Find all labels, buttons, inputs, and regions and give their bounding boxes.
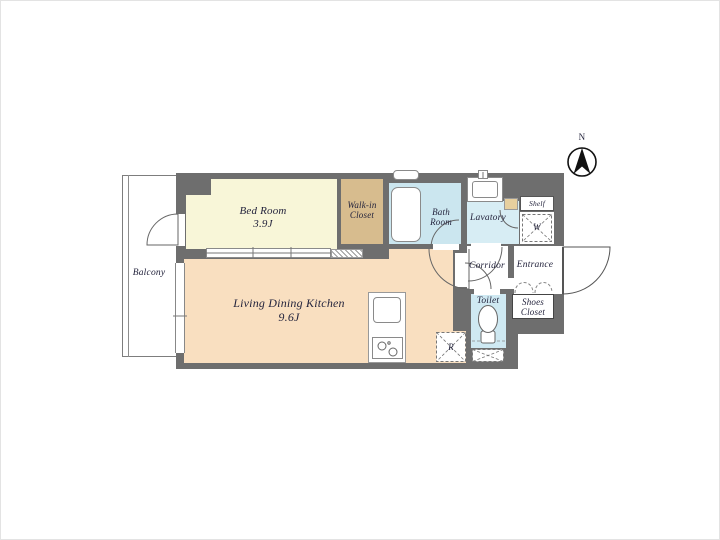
bedroom-ldk-sliding-door xyxy=(206,248,331,258)
ldk-label: Living Dining Kitchen 9.6J xyxy=(209,296,369,324)
bedroom-name: Bed Room xyxy=(239,205,286,217)
washer-label: W xyxy=(522,222,552,233)
entrance-door-swing xyxy=(563,247,610,294)
ldk-area: 9.6J xyxy=(209,310,369,324)
shoes-closet-label: Shoes Closet xyxy=(512,297,554,317)
bath-window xyxy=(393,170,419,180)
north-label: N xyxy=(572,132,592,143)
wic-entry-hatch xyxy=(331,249,363,258)
entrance-label: Entrance xyxy=(505,260,565,271)
lavatory-label: Lavatory xyxy=(458,213,518,224)
lavatory-faucet xyxy=(478,170,488,179)
refrigerator-label: R xyxy=(436,342,466,353)
compass-icon xyxy=(568,148,596,176)
bath-doorway xyxy=(433,244,459,250)
bedroom-balcony-doorway xyxy=(175,214,185,246)
toilet-label: Toilet xyxy=(461,296,515,307)
toilet-doorway xyxy=(474,288,500,295)
kitchen-sink xyxy=(373,297,401,323)
bedroom-area: 3.9J xyxy=(193,218,333,231)
corridor-entrance-opening xyxy=(508,278,514,289)
balcony-rail-line xyxy=(128,175,129,357)
lavatory-doorway xyxy=(471,243,501,250)
bedroom-label: Bed Room 3.9J xyxy=(193,205,333,231)
wic-label: Walk-in Closet xyxy=(337,200,387,220)
lavatory-sink-basin xyxy=(472,181,498,198)
shelf-label: Shelf xyxy=(520,199,554,208)
ldk-floor-strip xyxy=(389,249,453,261)
balcony-label: Balcony xyxy=(119,268,179,279)
floor-plan: Bed Room 3.9J Living Dining Kitchen 9.6J… xyxy=(0,0,720,540)
ldk-name: Living Dining Kitchen xyxy=(233,296,345,310)
kitchen-stove xyxy=(372,337,403,359)
lavatory-door-panel xyxy=(504,198,518,210)
balcony-area xyxy=(122,175,176,357)
